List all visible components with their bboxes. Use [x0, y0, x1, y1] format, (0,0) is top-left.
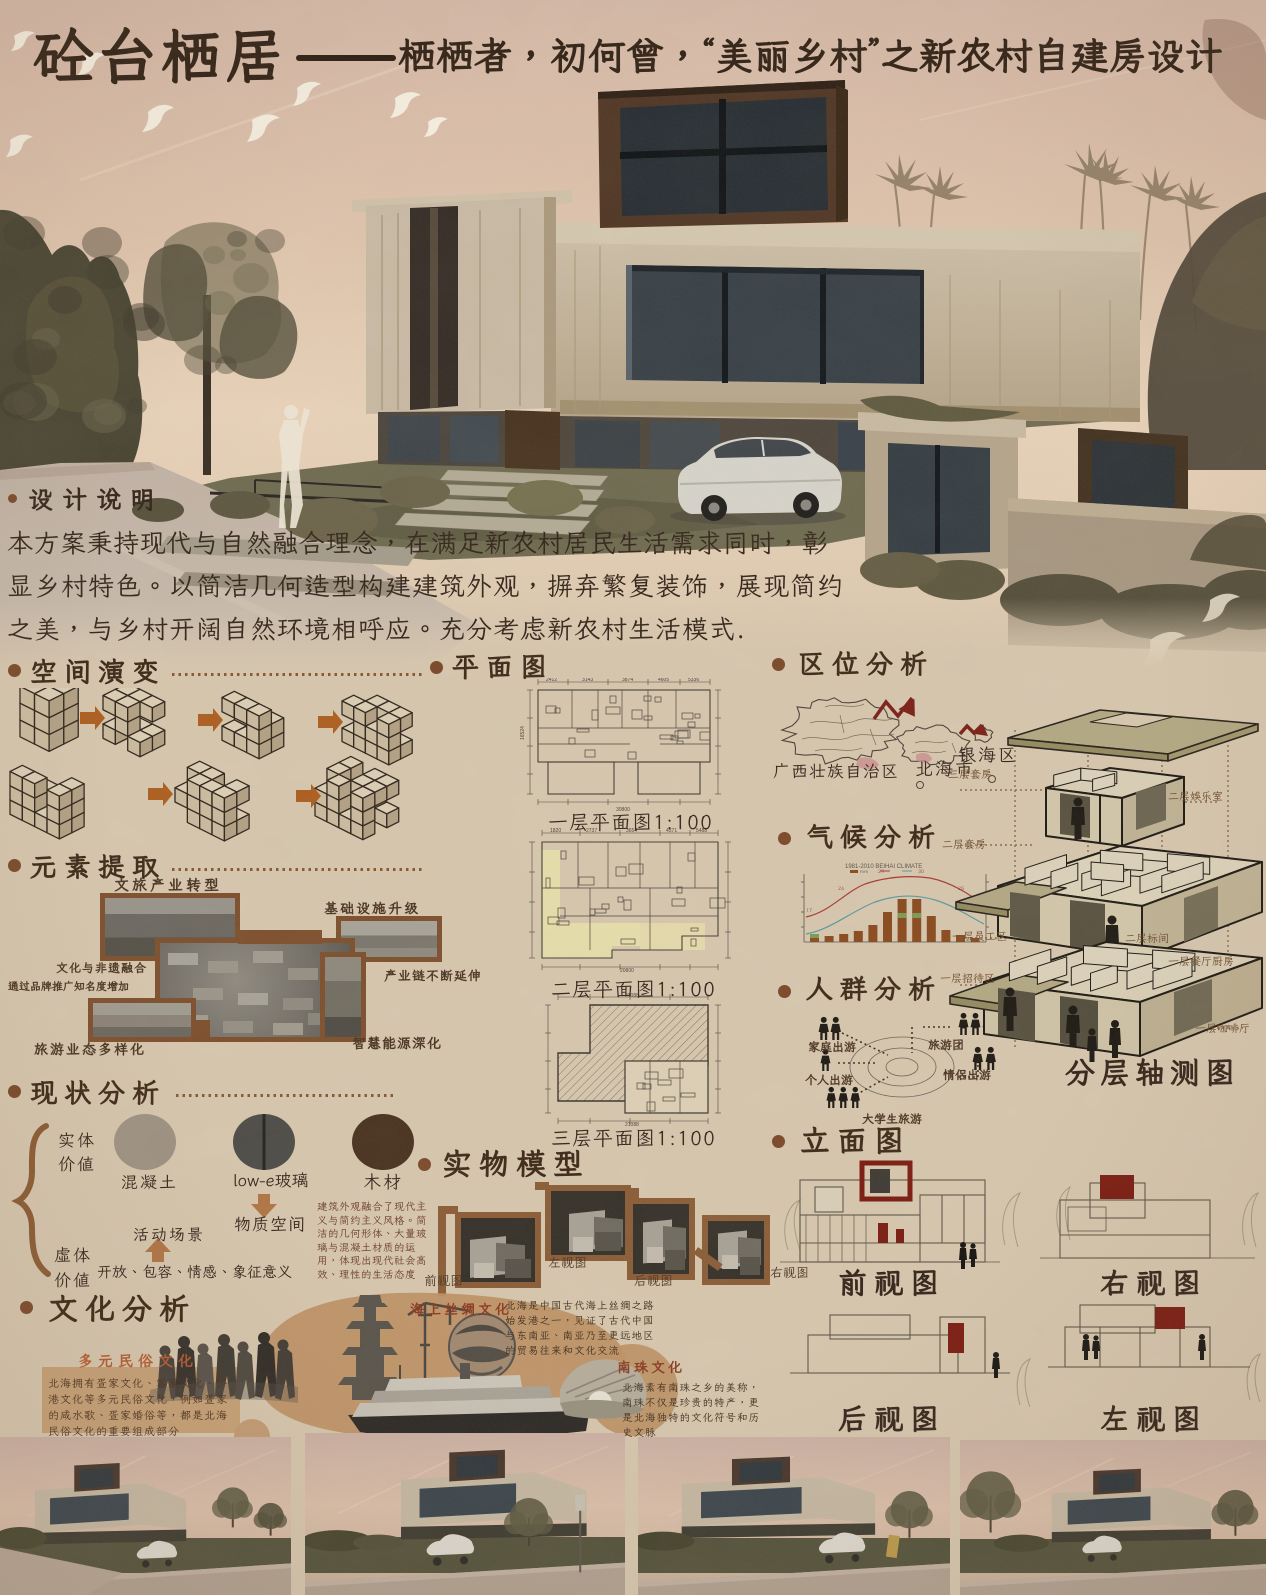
svg-text:5336: 5336 — [688, 678, 699, 683]
svg-text:3143: 3143 — [582, 678, 593, 683]
svg-text:2412: 2412 — [546, 678, 557, 683]
svg-text:20800: 20800 — [620, 968, 634, 973]
svg-text:17: 17 — [806, 908, 812, 914]
svg-text:mm: mm — [860, 869, 868, 875]
svg-text:4605: 4605 — [658, 678, 669, 683]
svg-text:24: 24 — [838, 886, 844, 892]
svg-text:16524: 16524 — [520, 726, 526, 740]
svg-text:1981-2010 BEIHAI CLIMATE: 1981-2010 BEIHAI CLIMATE — [845, 864, 922, 870]
svg-text:3874: 3874 — [622, 678, 633, 683]
